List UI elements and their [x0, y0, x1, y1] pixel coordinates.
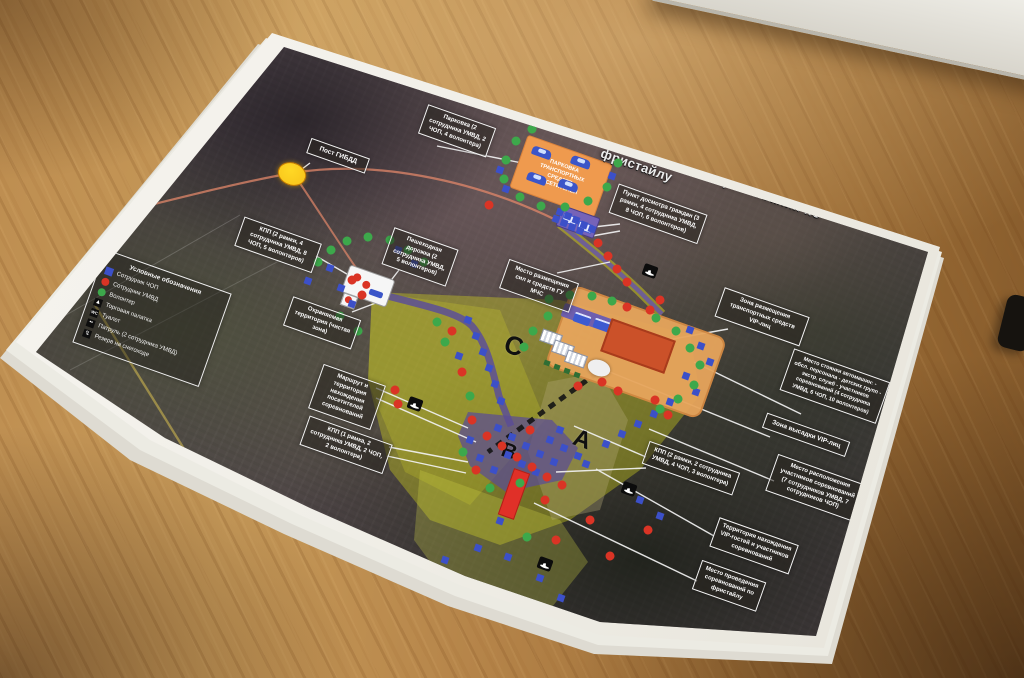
red-circle [100, 277, 110, 287]
patrol-icon [86, 318, 96, 328]
snowmobile-icon [82, 329, 92, 339]
leader-line [557, 262, 610, 273]
photo-canvas: ПАРКОВКА ТРАНСПОРТНЫХ СРЕДСТВ ПОСЕТИТЕЛЕ… [0, 0, 1024, 678]
toilet-icon [89, 308, 99, 318]
tent-icon [93, 298, 103, 308]
blue-square [104, 266, 114, 276]
car-icon [368, 288, 383, 298]
green-circle [97, 287, 107, 297]
leader-line [592, 231, 620, 236]
